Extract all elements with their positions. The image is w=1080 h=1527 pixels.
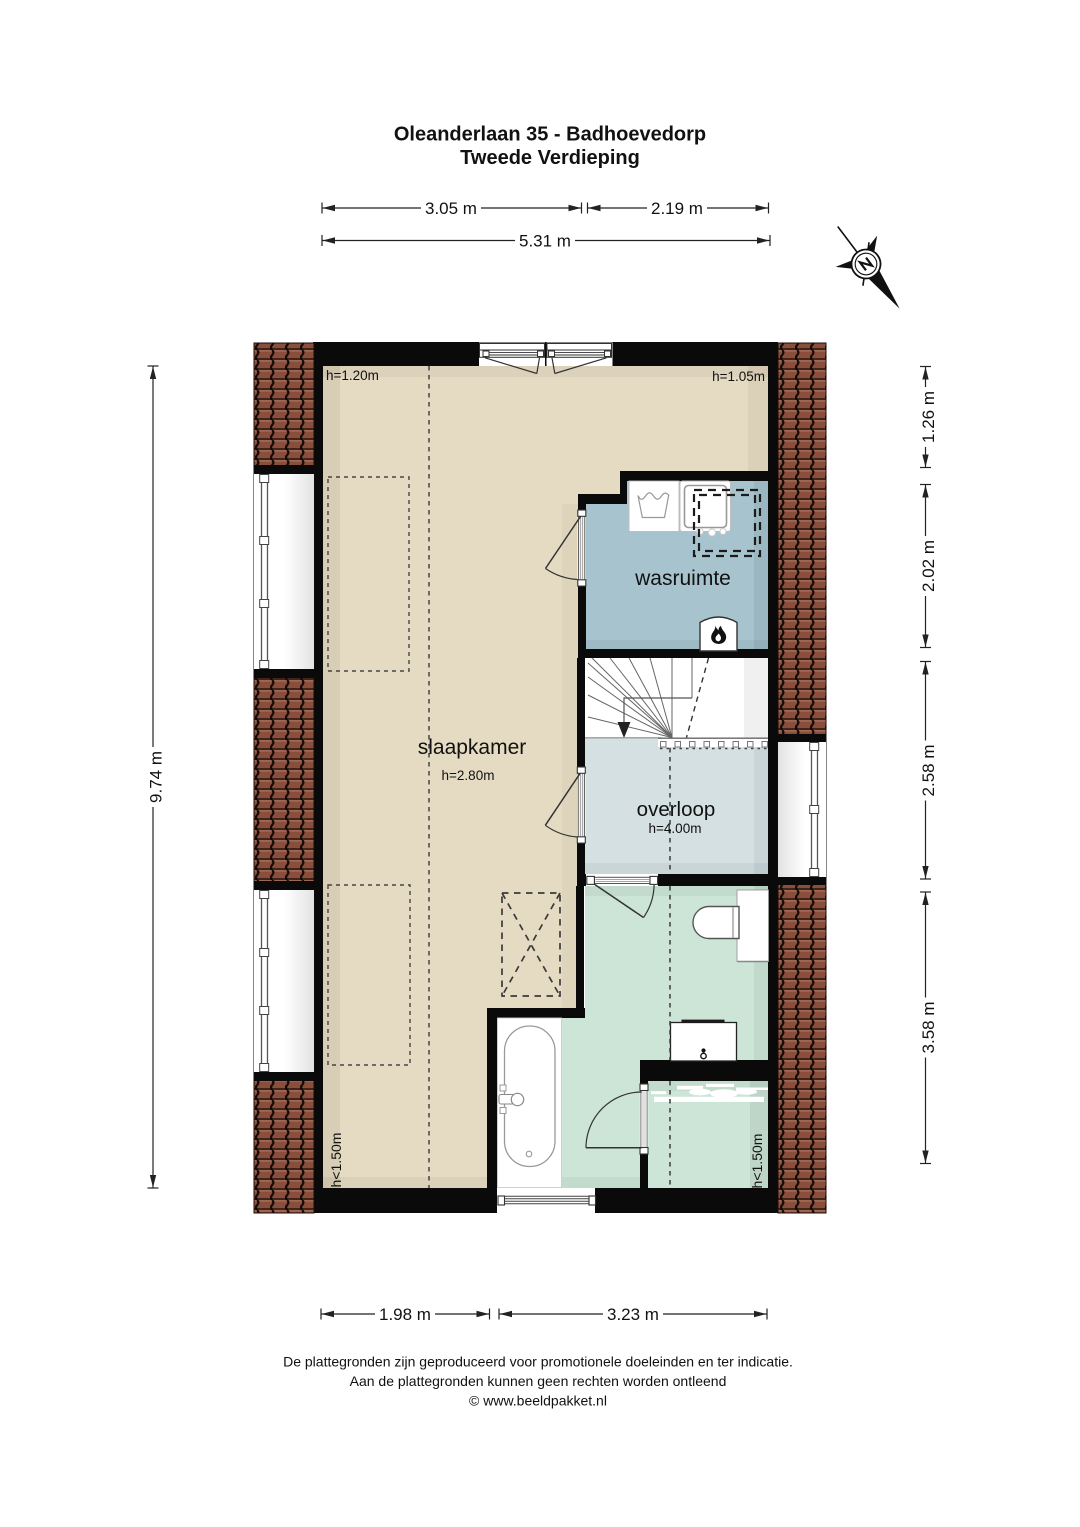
svg-text:5.31 m: 5.31 m xyxy=(519,232,571,251)
svg-text:slaapkamer: slaapkamer xyxy=(418,736,527,759)
svg-text:9.74 m: 9.74 m xyxy=(147,751,166,803)
svg-text:Aan de plattegronden kunnen ge: Aan de plattegronden kunnen geen rechten… xyxy=(350,1373,727,1389)
svg-text:Tweede Verdieping: Tweede Verdieping xyxy=(460,147,640,169)
svg-text:1.26 m: 1.26 m xyxy=(919,391,938,443)
svg-text:2.19 m: 2.19 m xyxy=(651,199,703,218)
svg-text:3.23 m: 3.23 m xyxy=(607,1305,659,1324)
svg-text:De plattegronden zijn geproduc: De plattegronden zijn geproduceerd voor … xyxy=(283,1354,793,1370)
svg-text:overloop: overloop xyxy=(637,798,716,821)
svg-text:3.58 m: 3.58 m xyxy=(919,1002,938,1054)
svg-text:3.05 m: 3.05 m xyxy=(425,199,477,218)
svg-text:Oleanderlaan 35 - Badhoevedorp: Oleanderlaan 35 - Badhoevedorp xyxy=(394,124,706,146)
svg-text:h=2.80m: h=2.80m xyxy=(442,768,495,783)
svg-text:h<1.50m: h<1.50m xyxy=(328,1133,344,1188)
svg-text:2.02 m: 2.02 m xyxy=(919,540,938,592)
svg-text:h=1.05m: h=1.05m xyxy=(712,369,765,384)
svg-text:© www.beeldpakket.nl: © www.beeldpakket.nl xyxy=(469,1393,607,1409)
svg-text:1.98 m: 1.98 m xyxy=(379,1305,431,1324)
svg-text:h=4.00m: h=4.00m xyxy=(649,821,702,836)
svg-text:2.58 m: 2.58 m xyxy=(919,745,938,797)
svg-text:h=1.20m: h=1.20m xyxy=(326,368,379,383)
svg-text:wasruimte: wasruimte xyxy=(634,567,731,590)
svg-text:h<1.50m: h<1.50m xyxy=(749,1134,765,1189)
